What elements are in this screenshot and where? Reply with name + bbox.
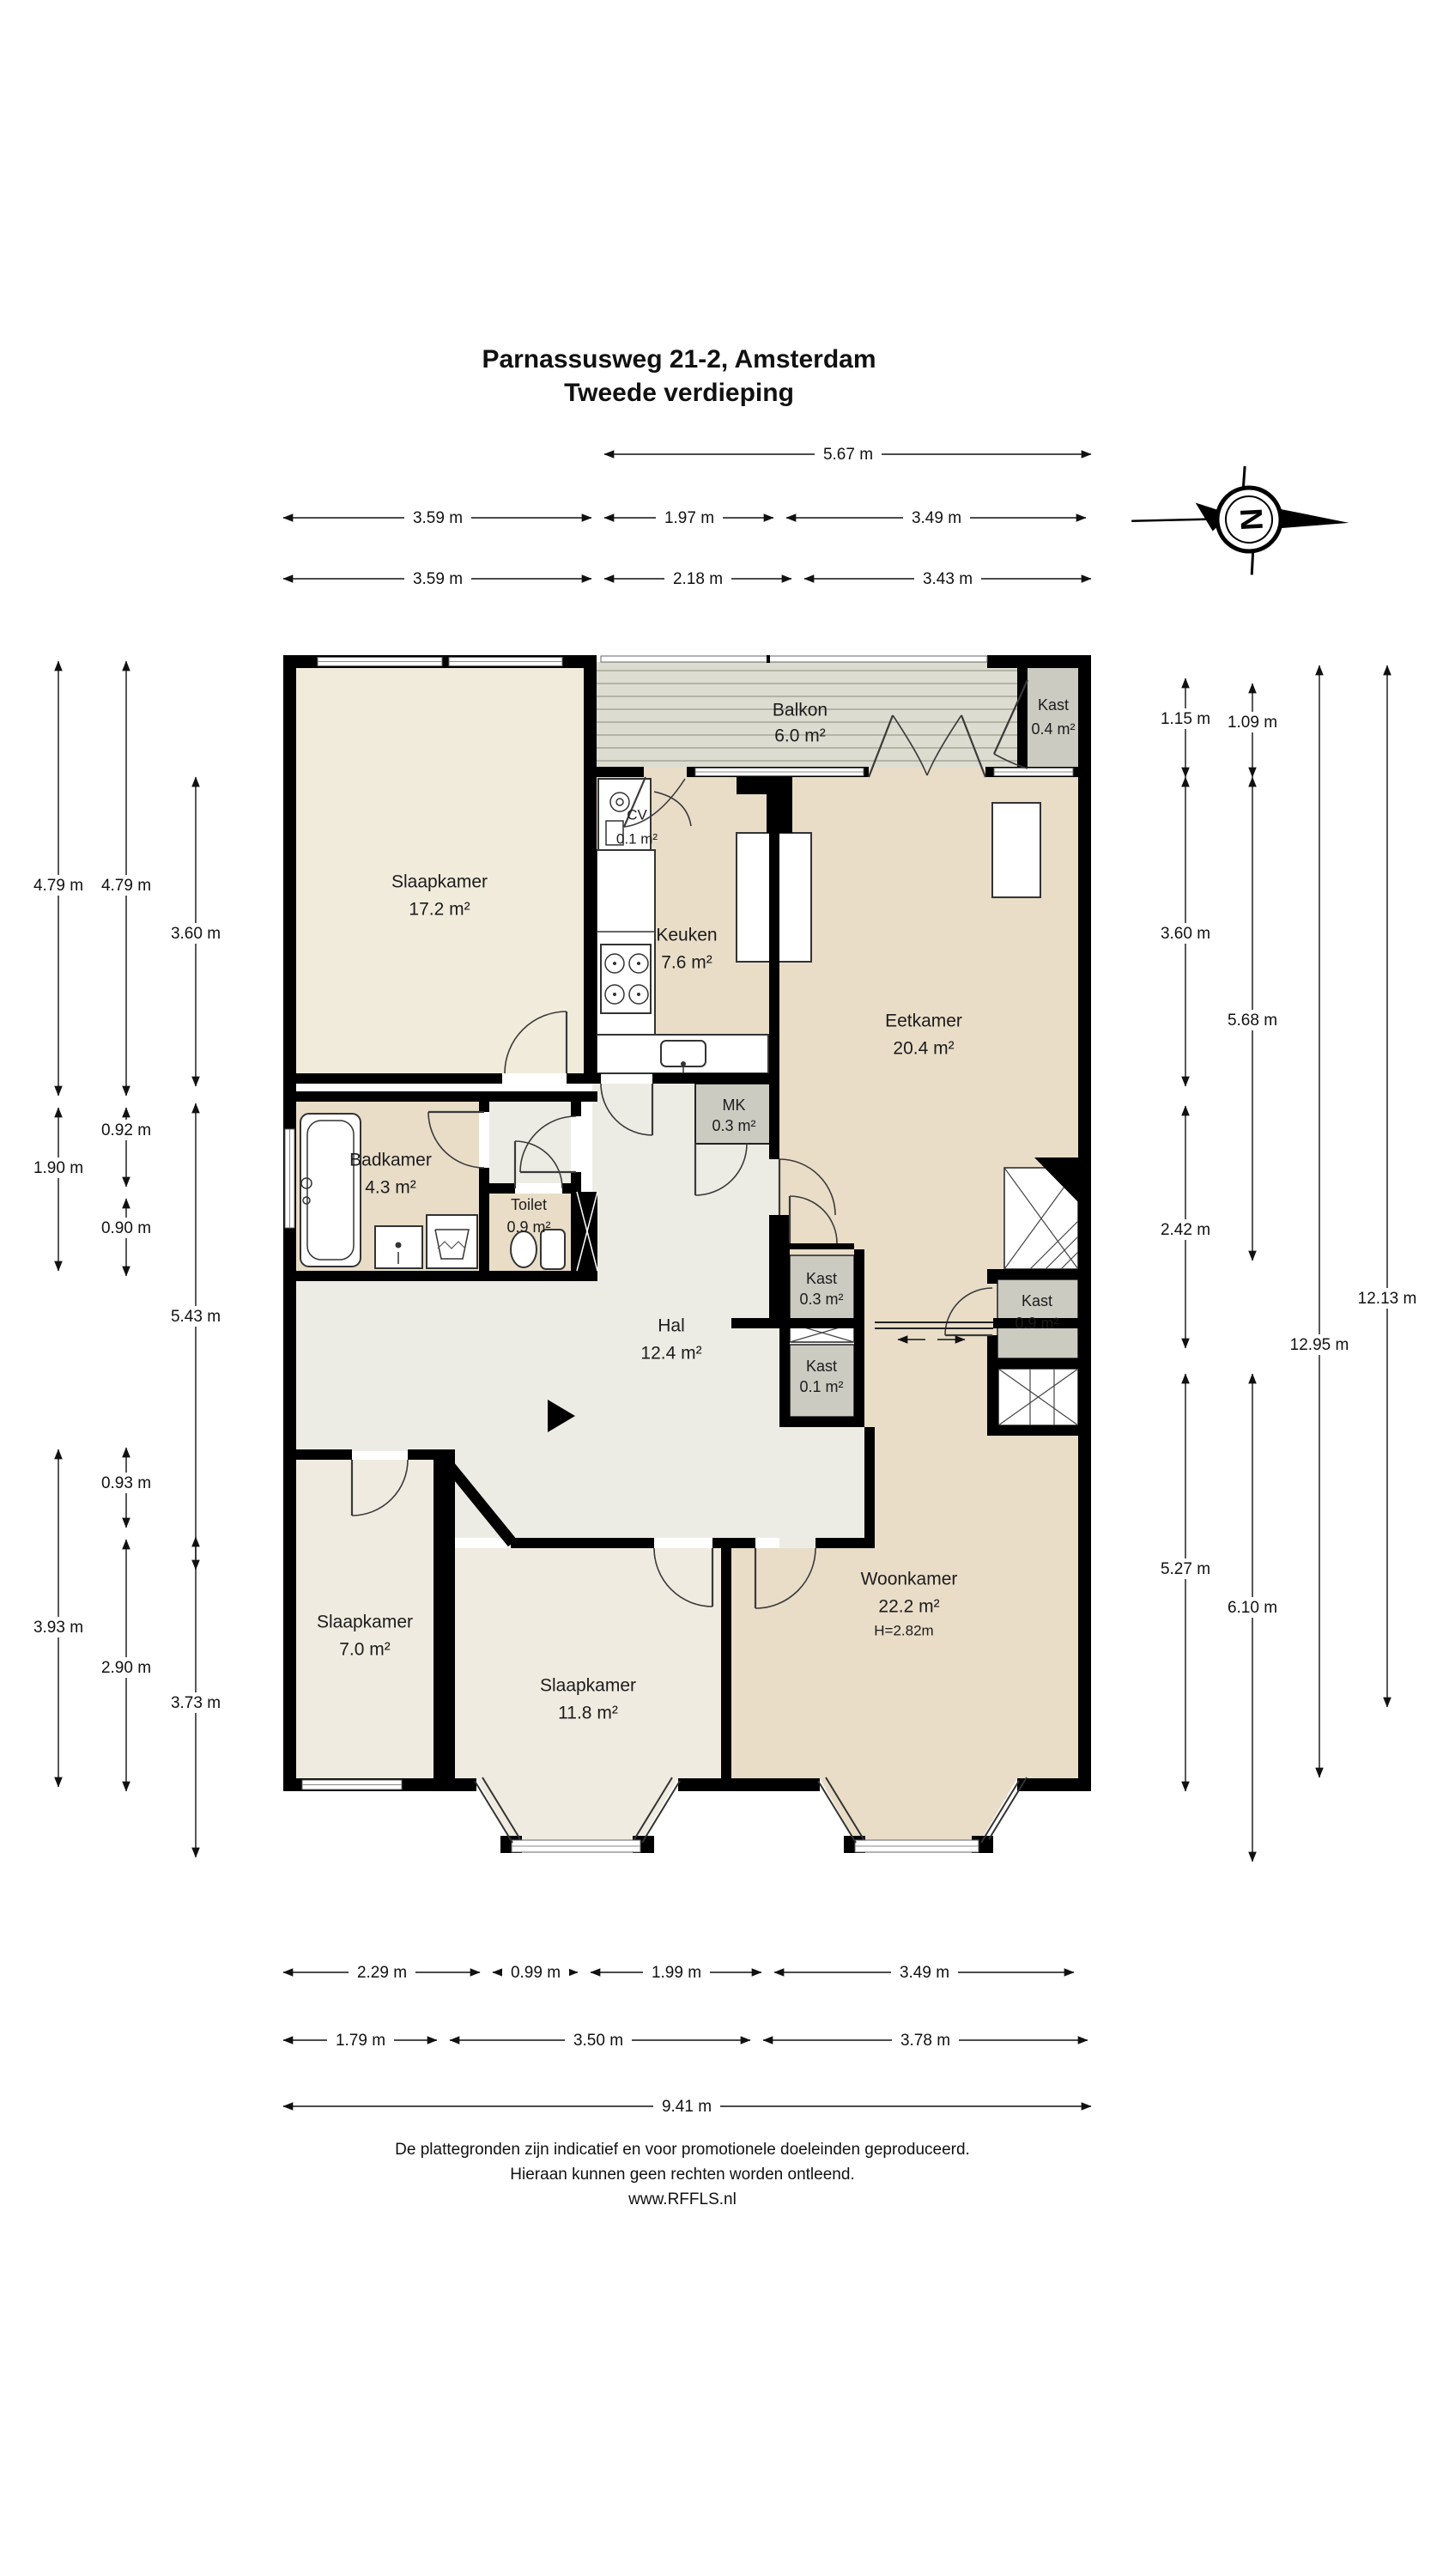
label-kast-03-name: Kast xyxy=(806,1270,837,1287)
label-hal-area: 12.4 m² xyxy=(640,1344,701,1364)
dim-line: 3.49 m xyxy=(786,507,1086,528)
label-badkamer-area: 4.3 m² xyxy=(365,1178,416,1198)
dim-line: 5.67 m xyxy=(604,444,1091,465)
dim-line: 12.13 m xyxy=(1346,665,1428,1707)
label-kast-09-area: 0.9 m² xyxy=(1015,1315,1058,1332)
dim-line: 3.59 m xyxy=(283,507,591,528)
floor-slaapkamer-17 xyxy=(296,668,584,1073)
svg-text:3.49 m: 3.49 m xyxy=(912,509,961,527)
label-eetkamer-area: 20.4 m² xyxy=(893,1039,954,1059)
stairwell-lower xyxy=(998,1369,1078,1425)
dim-line: 3.78 m xyxy=(763,2030,1088,2050)
kitchen-sink-counter xyxy=(597,1035,768,1073)
label-balkon-area: 6.0 m² xyxy=(774,726,826,746)
floor-hal-2 xyxy=(296,1281,779,1451)
svg-text:5.67 m: 5.67 m xyxy=(823,446,873,464)
disclaimer-line2: Hieraan kunnen geen rechten worden ontle… xyxy=(0,2162,1365,2187)
label-mk-area: 0.3 m² xyxy=(712,1117,755,1134)
dim-line: 1.97 m xyxy=(604,507,773,528)
dim-line: 3.49 m xyxy=(774,1962,1074,1983)
dimensions-right: 1.15 m 3.60 m 2.42 m 5.27 m 1.09 m 5.68 … xyxy=(1149,665,1428,1862)
compass-letter: N xyxy=(1234,507,1270,532)
svg-text:0.99 m: 0.99 m xyxy=(511,1964,561,1982)
shaft-hatched xyxy=(577,1192,597,1271)
label-slaapkamer3-name: Slaapkamer xyxy=(540,1676,636,1696)
dim-line: 3.43 m xyxy=(804,568,1091,589)
dim-line: 0.99 m xyxy=(493,1962,578,1983)
svg-text:5.43 m: 5.43 m xyxy=(171,1308,221,1326)
label-balkon-name: Balkon xyxy=(773,701,828,720)
label-kast-balkon-name: Kast xyxy=(1038,696,1069,714)
svg-text:0.90 m: 0.90 m xyxy=(101,1219,151,1237)
kast-03-box xyxy=(790,1255,854,1321)
dim-line: 2.29 m xyxy=(283,1962,480,1983)
dim-line: 4.79 m xyxy=(90,661,162,1096)
svg-text:1.97 m: 1.97 m xyxy=(664,509,714,527)
label-cv-name: CV xyxy=(627,806,647,823)
dim-line: 0.90 m xyxy=(90,1199,162,1276)
svg-text:3.60 m: 3.60 m xyxy=(171,925,221,943)
dim-line: 2.18 m xyxy=(604,568,791,589)
dim-line: 5.68 m xyxy=(1216,777,1288,1261)
dim-line: 1.15 m xyxy=(1149,678,1222,777)
balcony-railing xyxy=(601,656,987,662)
dimensions-bottom: 2.29 m 0.99 m 1.99 m 3.49 m 1.79 m 3.50 … xyxy=(283,1962,1091,2117)
svg-text:3.73 m: 3.73 m xyxy=(171,1694,221,1712)
svg-text:1.09 m: 1.09 m xyxy=(1228,714,1277,732)
svg-text:2.90 m: 2.90 m xyxy=(101,1659,151,1677)
svg-text:6.10 m: 6.10 m xyxy=(1228,1599,1277,1617)
label-slaapkamer3-area: 11.8 m² xyxy=(558,1704,618,1723)
dim-line: 2.90 m xyxy=(90,1540,162,1791)
svg-text:0.92 m: 0.92 m xyxy=(101,1121,151,1139)
dim-line: 1.90 m xyxy=(22,1108,94,1271)
dim-line: 3.59 m xyxy=(283,568,591,589)
label-hal-name: Hal xyxy=(658,1316,685,1336)
label-mk-name: MK xyxy=(723,1097,746,1114)
svg-text:3.59 m: 3.59 m xyxy=(413,509,463,527)
dim-line: 0.93 m xyxy=(90,1448,162,1528)
dimensions-left: 4.79 m 1.90 m 3.93 m 4.79 m 0.92 m 0.90 … xyxy=(22,661,232,1857)
label-kast-01-area: 0.1 m² xyxy=(799,1378,843,1395)
svg-text:1.90 m: 1.90 m xyxy=(33,1159,83,1177)
label-slaapkamer2-area: 7.0 m² xyxy=(339,1640,391,1660)
svg-text:3.43 m: 3.43 m xyxy=(923,570,973,588)
label-slaapkamer1-name: Slaapkamer xyxy=(391,872,488,892)
dim-line: 3.50 m xyxy=(450,2030,750,2050)
floor-kast-balkon xyxy=(1028,668,1078,767)
dim-line: 1.79 m xyxy=(283,2030,437,2050)
label-keuken-name: Keuken xyxy=(656,926,717,945)
floorplan-page: Parnassusweg 21-2, Amsterdam Tweede verd… xyxy=(0,0,1449,2576)
svg-text:3.59 m: 3.59 m xyxy=(413,570,463,588)
dim-line: 3.73 m xyxy=(160,1537,232,1857)
label-kast-01-name: Kast xyxy=(806,1358,837,1375)
label-woonkamer-height: H=2.82m xyxy=(874,1622,933,1638)
compass-north-icon: N xyxy=(1125,450,1355,593)
bathtub-icon xyxy=(300,1114,361,1267)
svg-text:5.27 m: 5.27 m xyxy=(1161,1560,1210,1578)
svg-text:4.79 m: 4.79 m xyxy=(101,877,151,895)
dim-line: 1.09 m xyxy=(1216,683,1288,777)
label-slaapkamer1-area: 17.2 m² xyxy=(409,900,470,920)
label-slaapkamer2-name: Slaapkamer xyxy=(317,1613,413,1632)
washbasin-icon xyxy=(375,1226,422,1268)
svg-text:12.95 m: 12.95 m xyxy=(1290,1336,1349,1354)
svg-text:2.18 m: 2.18 m xyxy=(673,570,723,588)
dim-line: 3.93 m xyxy=(22,1449,94,1787)
washing-machine-icon xyxy=(427,1215,477,1268)
floor-hal-3 xyxy=(433,1451,779,1538)
dim-line: 3.60 m xyxy=(160,777,232,1086)
dim-line: 2.42 m xyxy=(1149,1106,1222,1348)
floor-hal-4 xyxy=(779,1427,864,1548)
label-toilet-area: 0.9 m² xyxy=(506,1218,550,1236)
svg-text:2.42 m: 2.42 m xyxy=(1161,1221,1210,1239)
disclaimer-url: www.RFFLS.nl xyxy=(0,2187,1365,2212)
label-kast-balkon-area: 0.4 m² xyxy=(1031,720,1075,738)
dim-line: 5.43 m xyxy=(160,1103,232,1570)
label-kast-03-area: 0.3 m² xyxy=(799,1291,843,1308)
dim-line: 5.27 m xyxy=(1149,1374,1222,1791)
svg-text:12.13 m: 12.13 m xyxy=(1358,1290,1417,1308)
label-woonkamer-name: Woonkamer xyxy=(861,1570,958,1589)
svg-text:3.60 m: 3.60 m xyxy=(1161,925,1210,943)
dim-line: 12.95 m xyxy=(1278,665,1361,1777)
svg-text:3.93 m: 3.93 m xyxy=(33,1619,83,1637)
mk-box xyxy=(695,1084,773,1144)
dimensions-top: 5.67 m 3.59 m 1.97 m 3.49 m 3.59 m 2.18 … xyxy=(283,444,1091,589)
svg-text:2.29 m: 2.29 m xyxy=(357,1964,407,1982)
svg-text:5.68 m: 5.68 m xyxy=(1228,1012,1277,1030)
label-cv-area: 0.1 m² xyxy=(616,830,658,847)
dim-line: 9.41 m xyxy=(283,2096,1091,2117)
dim-line: 0.92 m xyxy=(90,1108,162,1187)
floor-slaapkamer-11 xyxy=(455,1548,721,1778)
chimney-block xyxy=(992,803,1040,897)
svg-text:3.50 m: 3.50 m xyxy=(573,2032,623,2050)
svg-text:3.49 m: 3.49 m xyxy=(900,1964,949,1982)
dim-line: 6.10 m xyxy=(1216,1374,1288,1862)
label-toilet-name: Toilet xyxy=(511,1196,547,1213)
label-eetkamer-name: Eetkamer xyxy=(885,1012,962,1031)
svg-text:1.99 m: 1.99 m xyxy=(652,1964,701,1982)
svg-text:4.79 m: 4.79 m xyxy=(33,877,83,895)
dim-line: 3.60 m xyxy=(1149,777,1222,1086)
floor-bay-woonkamer xyxy=(820,1778,1017,1844)
label-badkamer-name: Badkamer xyxy=(349,1151,432,1170)
svg-text:1.15 m: 1.15 m xyxy=(1161,710,1210,728)
svg-text:3.78 m: 3.78 m xyxy=(900,2032,950,2050)
svg-text:9.41 m: 9.41 m xyxy=(662,2098,712,2116)
label-woonkamer-area: 22.2 m² xyxy=(878,1597,939,1617)
label-keuken-area: 7.6 m² xyxy=(661,953,712,973)
svg-text:0.93 m: 0.93 m xyxy=(101,1474,151,1492)
disclaimer: De plattegronden zijn indicatief en voor… xyxy=(0,2137,1365,2212)
dim-line: 1.99 m xyxy=(591,1962,761,1983)
label-kast-09-name: Kast xyxy=(1022,1292,1052,1309)
dim-line: 4.79 m xyxy=(22,661,94,1096)
svg-text:1.79 m: 1.79 m xyxy=(336,2032,385,2050)
disclaimer-line1: De plattegronden zijn indicatief en voor… xyxy=(0,2137,1365,2162)
